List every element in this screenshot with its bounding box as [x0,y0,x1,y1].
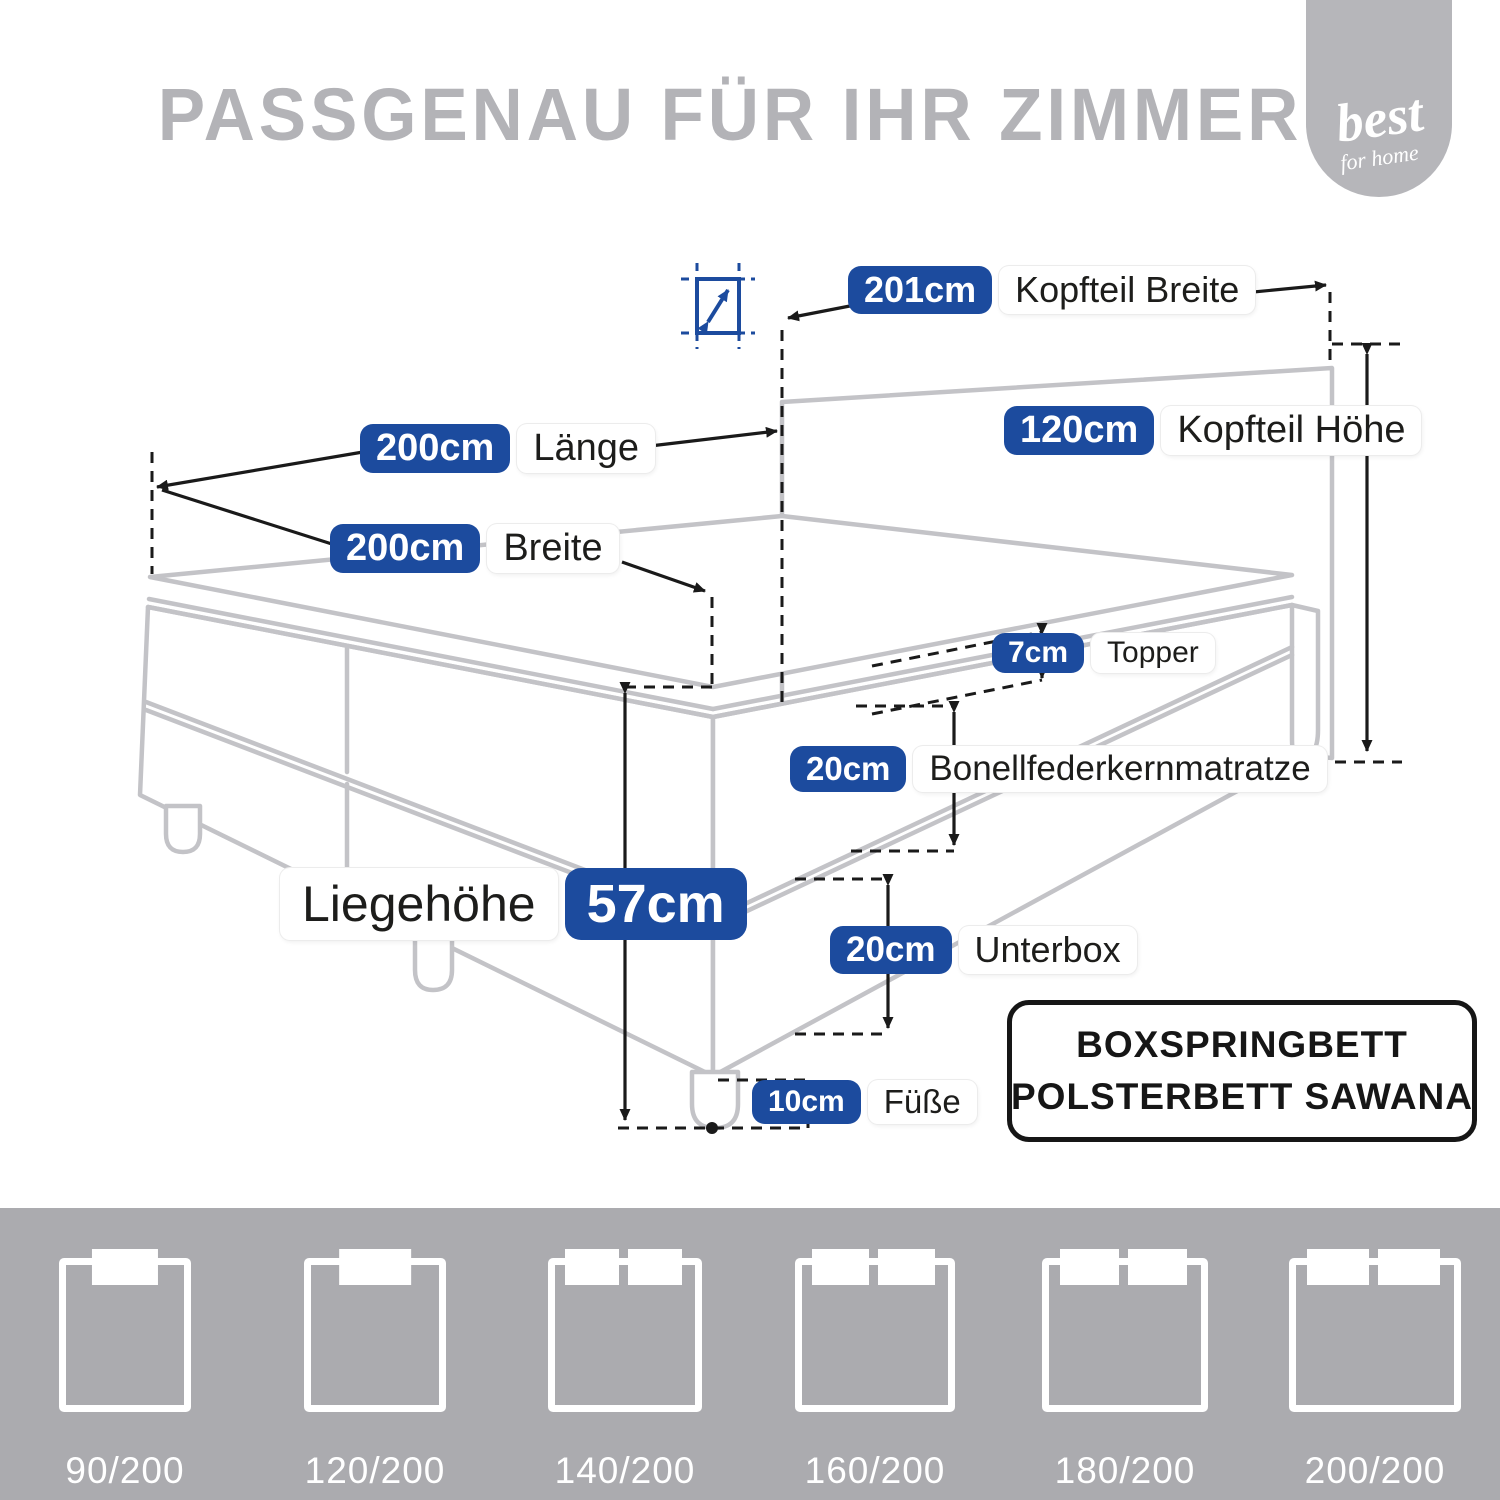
bed-size-label: 180/200 [1055,1450,1196,1492]
unterbox-value: 20cm [830,926,952,974]
bed-size-option: 90/200 [0,1208,250,1500]
pillow-icon [92,1249,158,1285]
breite-label: Breite [487,524,618,573]
infographic: PASSGENAU FÜR IHR ZIMMER best for home [0,0,1500,1500]
bed-size-icon [1289,1258,1461,1412]
measure-breite: 200cm Breite [330,524,619,573]
fuesse-value: 10cm [752,1080,861,1124]
bed-size-label: 200/200 [1305,1450,1446,1492]
bed-size-label: 120/200 [305,1450,446,1492]
topper-label: Topper [1091,633,1215,673]
kopfteil-hoehe-value: 120cm [1004,406,1154,455]
laenge-value: 200cm [360,424,510,473]
fuesse-label: Füße [868,1080,977,1124]
resize-icon [681,263,755,349]
measure-topper: 7cm Topper [992,633,1215,673]
bed-size-option: 200/200 [1250,1208,1500,1500]
measure-liegehoehe: Liegehöhe 57cm [280,868,747,940]
bed-size-option: 140/200 [500,1208,750,1500]
bed-size-icon [1042,1258,1208,1412]
bed-size-label: 90/200 [65,1450,184,1492]
bed-size-option: 120/200 [250,1208,500,1500]
kopfteil-breite-label: Kopfteil Breite [999,266,1255,314]
pillow-icon [812,1249,869,1285]
pillow-icon [565,1249,620,1285]
measure-laenge: 200cm Länge [360,424,655,473]
product-name-line2: POLSTERBETT SAWANA [1011,1076,1473,1118]
measure-unterbox: 20cm Unterbox [830,926,1137,974]
kopfteil-breite-value: 201cm [848,266,992,314]
bed-foot [415,934,452,990]
laenge-label: Länge [517,424,655,473]
sizes-strip: 90/200120/200140/200160/200180/200200/20… [0,1208,1500,1500]
product-name-line1: BOXSPRINGBETT [1076,1024,1408,1066]
product-name-box: BOXSPRINGBETT POLSTERBETT SAWANA [1007,1000,1477,1142]
matratze-label: Bonellfederkernmatratze [913,746,1326,792]
bed-size-option: 180/200 [1000,1208,1250,1500]
liegehoehe-label: Liegehöhe [280,868,558,940]
pillow-icon [1307,1249,1369,1285]
unterbox-label: Unterbox [959,926,1137,974]
measure-kopfteil-breite: 201cm Kopfteil Breite [848,266,1255,314]
measure-fuesse: 10cm Füße [752,1080,977,1124]
breite-value: 200cm [330,524,480,573]
bed-size-option: 160/200 [750,1208,1000,1500]
topper-value: 7cm [992,633,1084,673]
bed-size-icon [59,1258,191,1412]
kopfteil-hoehe-label: Kopfteil Höhe [1161,406,1421,455]
pillow-icon [628,1249,683,1285]
pillow-icon [339,1249,411,1285]
bed-left-face [140,607,713,1076]
liegehoehe-value: 57cm [565,868,747,940]
bed-size-label: 160/200 [805,1450,946,1492]
matratze-value: 20cm [790,746,906,792]
bed-foot [166,806,200,852]
bed-size-label: 140/200 [555,1450,696,1492]
pillow-icon [878,1249,935,1285]
measure-kopfteil-hoehe: 120cm Kopfteil Höhe [1004,406,1421,455]
bed-size-icon [304,1258,446,1412]
bed-size-icon [795,1258,955,1412]
floor-reference-dot [706,1122,718,1134]
pillow-icon [1060,1249,1119,1285]
bed-foot [692,1072,738,1128]
bed-size-icon [548,1258,702,1412]
measure-matratze: 20cm Bonellfederkernmatratze [790,746,1327,792]
pillow-icon [1128,1249,1187,1285]
pillow-icon [1378,1249,1440,1285]
